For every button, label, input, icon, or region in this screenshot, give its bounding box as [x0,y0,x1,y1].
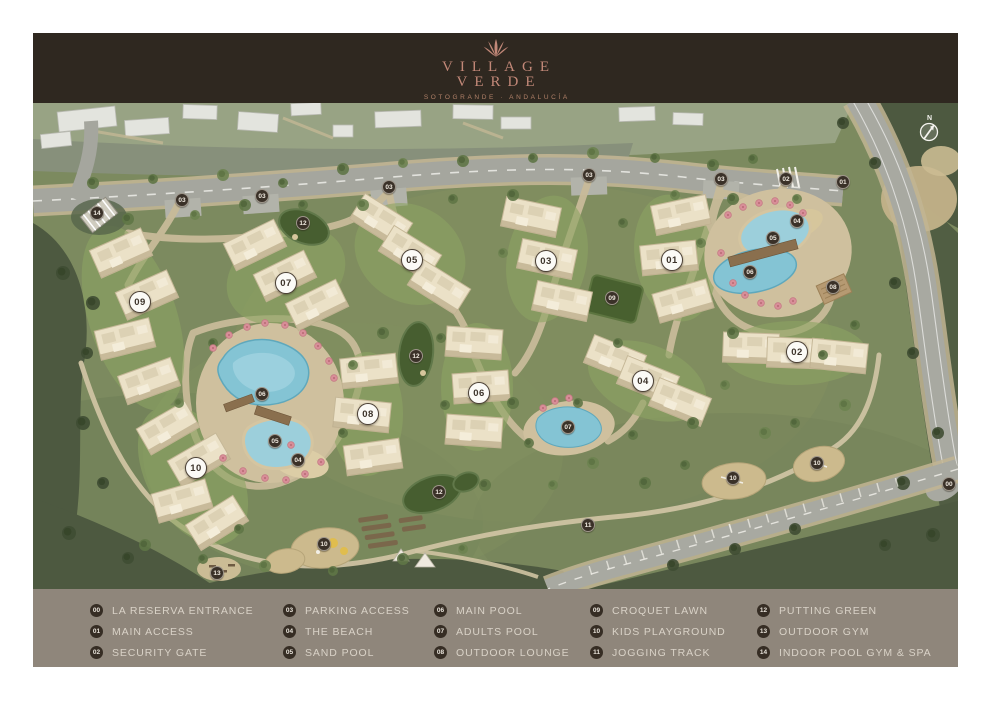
legend-badge-10: 10 [590,625,603,638]
legend-item-06: 06MAIN POOL [434,600,570,621]
legend-item-13: 13OUTDOOR GYM [757,621,932,642]
legend-label-00: LA RESERVA ENTRANCE [112,605,254,617]
compass-north-label: N [927,115,932,122]
legend-badge-08: 08 [434,646,447,659]
legend-column-2: 03PARKING ACCESS04THE BEACH05SAND POOL [283,600,410,663]
brand-title-line1: VILLAGE [435,60,556,75]
legend-badge-06: 06 [434,604,447,617]
legend-badge-09: 09 [590,604,603,617]
legend-label-07: ADULTS POOL [456,626,539,638]
site-plan-illustration: N [33,103,958,589]
legend-badge-01: 01 [90,625,103,638]
legend-item-02: 02SECURITY GATE [90,642,254,663]
content-area: VILLAGE VERDE SOTOGRANDE · ANDALUCÍA [33,33,958,667]
legend-badge-13: 13 [757,625,770,638]
legend-bar: 00LA RESERVA ENTRANCE01MAIN ACCESS02SECU… [33,589,958,667]
legend-label-14: INDOOR POOL GYM & SPA [779,647,932,659]
legend-item-12: 12PUTTING GREEN [757,600,932,621]
legend-badge-03: 03 [283,604,296,617]
legend-item-10: 10KIDS PLAYGROUND [590,621,726,642]
brand-subtitle: SOTOGRANDE · ANDALUCÍA [421,94,570,101]
legend-badge-07: 07 [434,625,447,638]
site-plan-map: N 01020304050607080910000102030303030304… [33,103,958,589]
legend-label-11: JOGGING TRACK [612,647,710,659]
legend-item-09: 09CROQUET LAWN [590,600,726,621]
legend-badge-00: 00 [90,604,103,617]
legend-item-07: 07ADULTS POOL [434,621,570,642]
legend-item-08: 08OUTDOOR LOUNGE [434,642,570,663]
legend-item-00: 00LA RESERVA ENTRANCE [90,600,254,621]
legend-badge-04: 04 [283,625,296,638]
legend-label-03: PARKING ACCESS [305,605,410,617]
legend-badge-11: 11 [590,646,603,659]
legend-item-03: 03PARKING ACCESS [283,600,410,621]
legend-label-06: MAIN POOL [456,605,522,617]
legend-badge-05: 05 [283,646,296,659]
legend-item-01: 01MAIN ACCESS [90,621,254,642]
legend-item-04: 04THE BEACH [283,621,410,642]
legend-column-1: 00LA RESERVA ENTRANCE01MAIN ACCESS02SECU… [90,600,254,663]
legend-column-5: 12PUTTING GREEN13OUTDOOR GYM14INDOOR POO… [757,600,932,663]
legend-label-09: CROQUET LAWN [612,605,708,617]
lotus-logo-icon [482,38,510,60]
legend-label-08: OUTDOOR LOUNGE [456,647,570,659]
legend-label-02: SECURITY GATE [112,647,207,659]
legend-label-05: SAND POOL [305,647,374,659]
legend-badge-14: 14 [757,646,770,659]
legend-item-11: 11JOGGING TRACK [590,642,726,663]
header-banner: VILLAGE VERDE SOTOGRANDE · ANDALUCÍA [33,33,958,103]
legend-label-12: PUTTING GREEN [779,605,877,617]
legend-badge-12: 12 [757,604,770,617]
legend-label-04: THE BEACH [305,626,373,638]
legend-column-3: 06MAIN POOL07ADULTS POOL08OUTDOOR LOUNGE [434,600,570,663]
legend-label-13: OUTDOOR GYM [779,626,869,638]
legend-item-14: 14INDOOR POOL GYM & SPA [757,642,932,663]
legend-label-01: MAIN ACCESS [112,626,194,638]
legend-item-05: 05SAND POOL [283,642,410,663]
legend-badge-02: 02 [90,646,103,659]
brochure-page: VILLAGE VERDE SOTOGRANDE · ANDALUCÍA [0,0,992,701]
brand-title-line2: VERDE [450,75,542,90]
legend-column-4: 09CROQUET LAWN10KIDS PLAYGROUND11JOGGING… [590,600,726,663]
legend-label-10: KIDS PLAYGROUND [612,626,726,638]
